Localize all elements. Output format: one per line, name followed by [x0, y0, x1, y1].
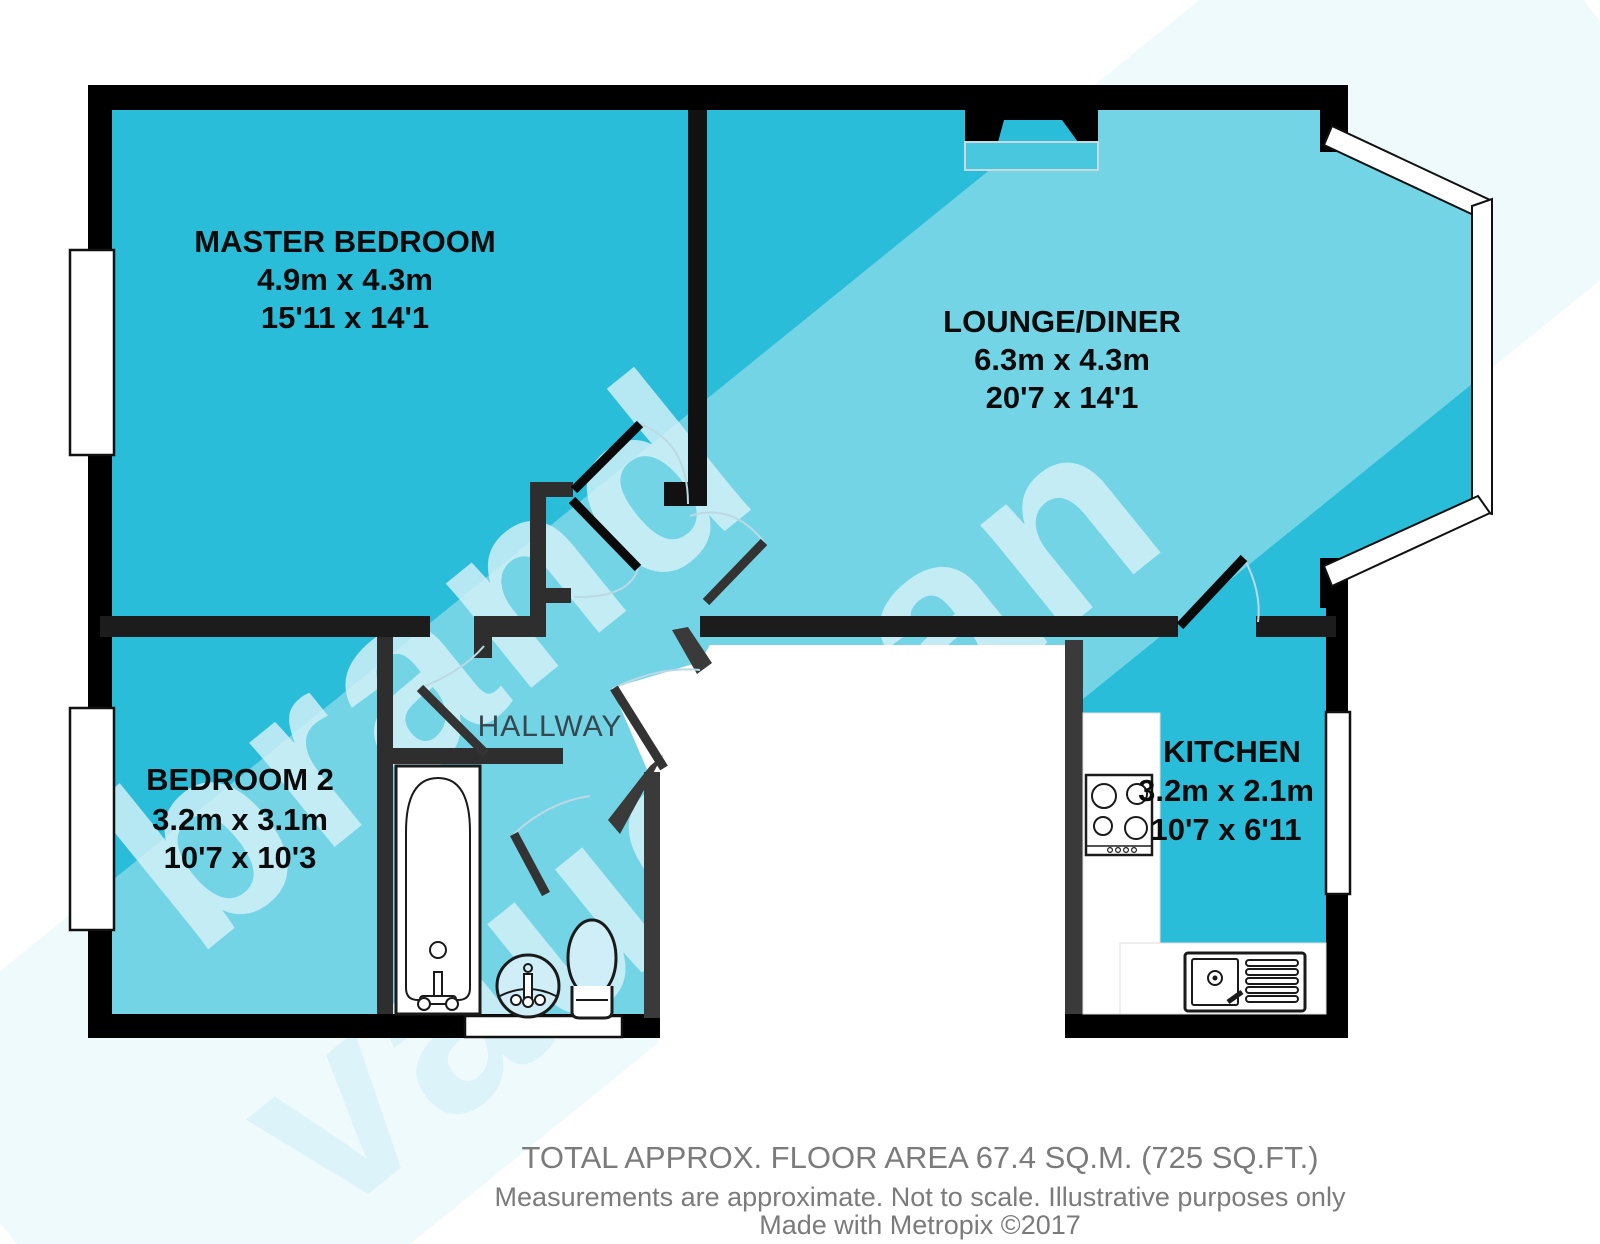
- void-area: [612, 645, 1076, 1042]
- bathtub-tap-stem: [434, 972, 442, 998]
- floorplan-page: brand vaughan: [0, 0, 1600, 1244]
- wall-lounge-bottom-right: [1256, 616, 1336, 637]
- label-hallway: HALLWAY: [478, 710, 623, 743]
- sink-drain-dot: [1213, 976, 1218, 981]
- wall-hall-foot-bottom: [546, 588, 571, 603]
- bathtub-tap-right: [446, 998, 458, 1010]
- toilet-cistern: [572, 986, 612, 1018]
- toilet: [568, 920, 616, 1018]
- drainer-groove-2: [1246, 969, 1298, 975]
- label-lounge-name: LOUNGE/DINER: [943, 304, 1181, 339]
- bathtub: [396, 766, 480, 1014]
- toilet-bowl: [568, 920, 616, 996]
- basin-knob-right: [535, 995, 545, 1005]
- label-lounge-metric: 6.3m x 4.3m: [974, 342, 1150, 377]
- label-bedroom2-name: BEDROOM 2: [146, 762, 334, 797]
- wall-top: [88, 85, 1348, 110]
- label-master-bedroom-imperial: 15'11 x 14'1: [261, 300, 429, 335]
- basin: [497, 955, 559, 1017]
- floorplan-canvas: brand vaughan: [0, 0, 1600, 1244]
- wall-right-upper: [1326, 575, 1348, 715]
- basin-knob-left: [511, 995, 521, 1005]
- drainer-groove-4: [1246, 987, 1298, 993]
- label-kitchen-name: KITCHEN: [1163, 734, 1301, 769]
- label-master-bedroom-name: MASTER BEDROOM: [194, 224, 495, 259]
- basin-knob-mid: [523, 997, 533, 1007]
- wall-mb-lounge: [688, 110, 707, 506]
- window-bedroom2: [70, 708, 114, 930]
- footer-credit: Made with Metropix ©2017: [759, 1210, 1081, 1240]
- basin-pedestal: [524, 974, 532, 998]
- wall-hall-foot-top: [546, 482, 573, 497]
- wall-kitchen-west: [1065, 640, 1083, 1014]
- footer-disclaimer: Measurements are approximate. Not to sca…: [495, 1182, 1346, 1212]
- label-kitchen-imperial: 10'7 x 6'11: [1151, 812, 1302, 847]
- label-master-bedroom-metric: 4.9m x 4.3m: [257, 262, 433, 297]
- wall-hall-west: [530, 482, 546, 637]
- drainer-groove-3: [1246, 978, 1298, 984]
- footer: TOTAL APPROX. FLOOR AREA 67.4 SQ.M. (725…: [495, 1140, 1346, 1240]
- sink-drainer: [1246, 960, 1298, 1002]
- kitchen-sink: [1185, 953, 1305, 1011]
- footer-total-area: TOTAL APPROX. FLOOR AREA 67.4 SQ.M. (725…: [521, 1140, 1318, 1175]
- drainer-groove-5: [1246, 996, 1298, 1002]
- wall-br2-north-a: [100, 616, 430, 637]
- label-lounge-imperial: 20'7 x 14'1: [986, 380, 1139, 415]
- window-master-bedroom: [70, 250, 114, 455]
- label-bedroom2-imperial: 10'7 x 10'3: [164, 840, 317, 875]
- window-kitchen: [1326, 712, 1350, 894]
- wall-bath-west: [377, 637, 393, 1014]
- wall-mb-lounge-foot: [664, 482, 707, 506]
- hearth: [965, 142, 1098, 170]
- bay-window-middle: [1472, 199, 1492, 514]
- drainer-groove-1: [1246, 960, 1298, 966]
- label-kitchen-metric: 3.2m x 2.1m: [1138, 773, 1314, 808]
- wall-lounge-bottom-left: [700, 616, 1178, 637]
- label-bedroom2-metric: 3.2m x 3.1m: [152, 802, 328, 837]
- bathtub-tap-left: [418, 998, 430, 1010]
- wall-bath-east: [644, 772, 660, 1018]
